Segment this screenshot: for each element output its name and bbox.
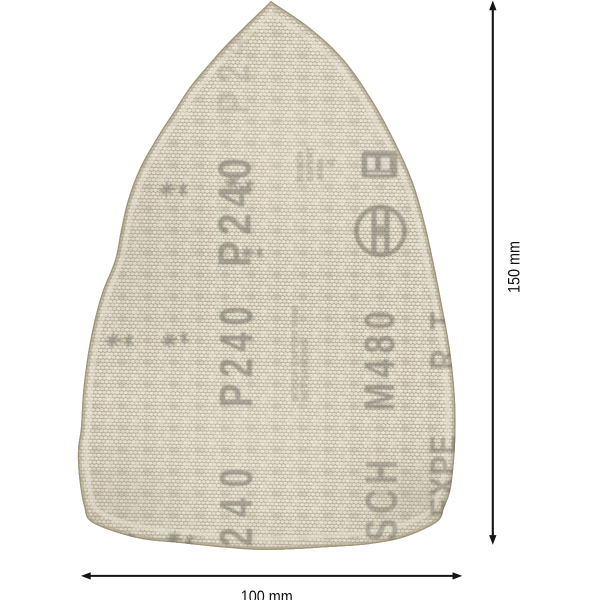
svg-text:M480: M480 — [356, 306, 404, 411]
svg-text:4: 4 — [323, 158, 339, 166]
svg-text:150 mm: 150 mm — [506, 241, 524, 293]
svg-text:EXPE: EXPE — [424, 433, 465, 517]
svg-text:BOSCH: BOSCH — [295, 151, 305, 182]
svg-text:P240: P240 — [210, 458, 262, 580]
svg-text:BOSCH: BOSCH — [357, 455, 407, 600]
svg-text:P240: P240 — [207, 0, 259, 114]
svg-text:BOSCH EXPERT M480: BOSCH EXPERT M480 — [290, 305, 300, 401]
svg-text:P240: P240 — [210, 152, 262, 267]
svg-text:EXPERT: EXPERT — [305, 146, 315, 181]
svg-text:P240: P240 — [210, 300, 262, 407]
svg-text:RT: RT — [424, 293, 465, 370]
svg-text:NET SANDING: NET SANDING — [300, 339, 310, 401]
svg-text:100 mm: 100 mm — [241, 588, 293, 600]
